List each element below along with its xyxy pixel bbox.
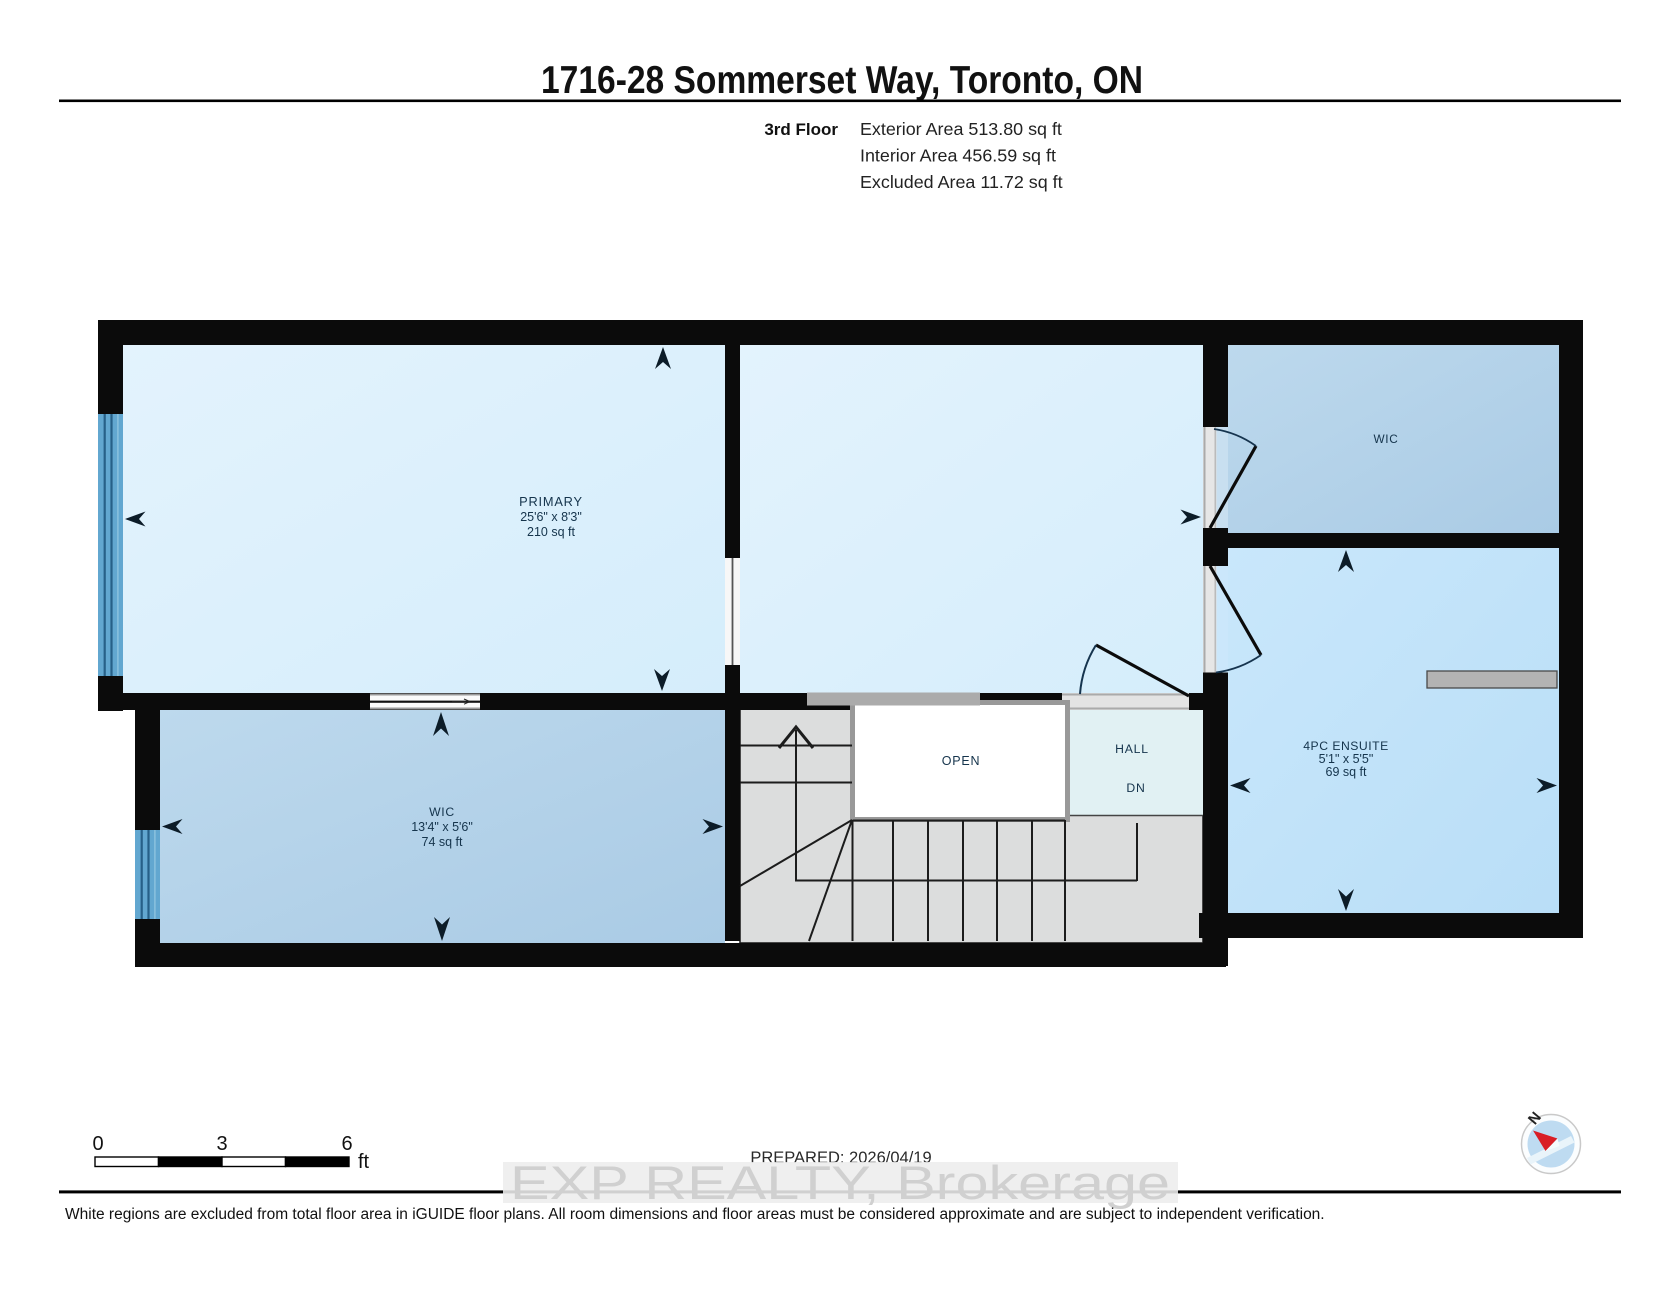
svg-text:210 sq ft: 210 sq ft [527, 525, 575, 539]
svg-text:ft: ft [358, 1151, 370, 1173]
svg-text:WIC: WIC [429, 805, 455, 819]
svg-text:White regions are excluded fro: White regions are excluded from total fl… [65, 1206, 1325, 1223]
svg-text:4PC ENSUITE: 4PC ENSUITE [1303, 739, 1388, 753]
svg-text:74 sq ft: 74 sq ft [422, 835, 464, 849]
svg-text:0: 0 [92, 1133, 103, 1155]
svg-text:25'6" x 8'3": 25'6" x 8'3" [520, 510, 582, 524]
svg-text:Interior Area 456.59 sq ft: Interior Area 456.59 sq ft [860, 146, 1056, 166]
svg-text:HALL: HALL [1115, 742, 1149, 756]
svg-text:DN: DN [1126, 781, 1145, 795]
svg-text:3: 3 [216, 1133, 227, 1155]
svg-text:6: 6 [341, 1133, 352, 1155]
svg-text:Exterior Area 513.80 sq ft: Exterior Area 513.80 sq ft [860, 119, 1062, 139]
svg-text:Excluded Area 11.72 sq ft: Excluded Area 11.72 sq ft [860, 172, 1063, 192]
svg-text:OPEN: OPEN [942, 754, 981, 768]
svg-text:3rd Floor: 3rd Floor [764, 120, 838, 139]
svg-text:69 sq ft: 69 sq ft [1326, 765, 1368, 779]
svg-text:PRIMARY: PRIMARY [519, 494, 583, 509]
svg-text:5'1" x 5'5": 5'1" x 5'5" [1319, 752, 1374, 766]
svg-text:1716-28 Sommerset Way, Toronto: 1716-28 Sommerset Way, Toronto, ON [541, 59, 1143, 102]
svg-text:WIC: WIC [1373, 432, 1398, 446]
svg-text:13'4" x 5'6": 13'4" x 5'6" [411, 820, 473, 834]
svg-text:EXP REALTY, Brokerage: EXP REALTY, Brokerage [510, 1156, 1170, 1209]
